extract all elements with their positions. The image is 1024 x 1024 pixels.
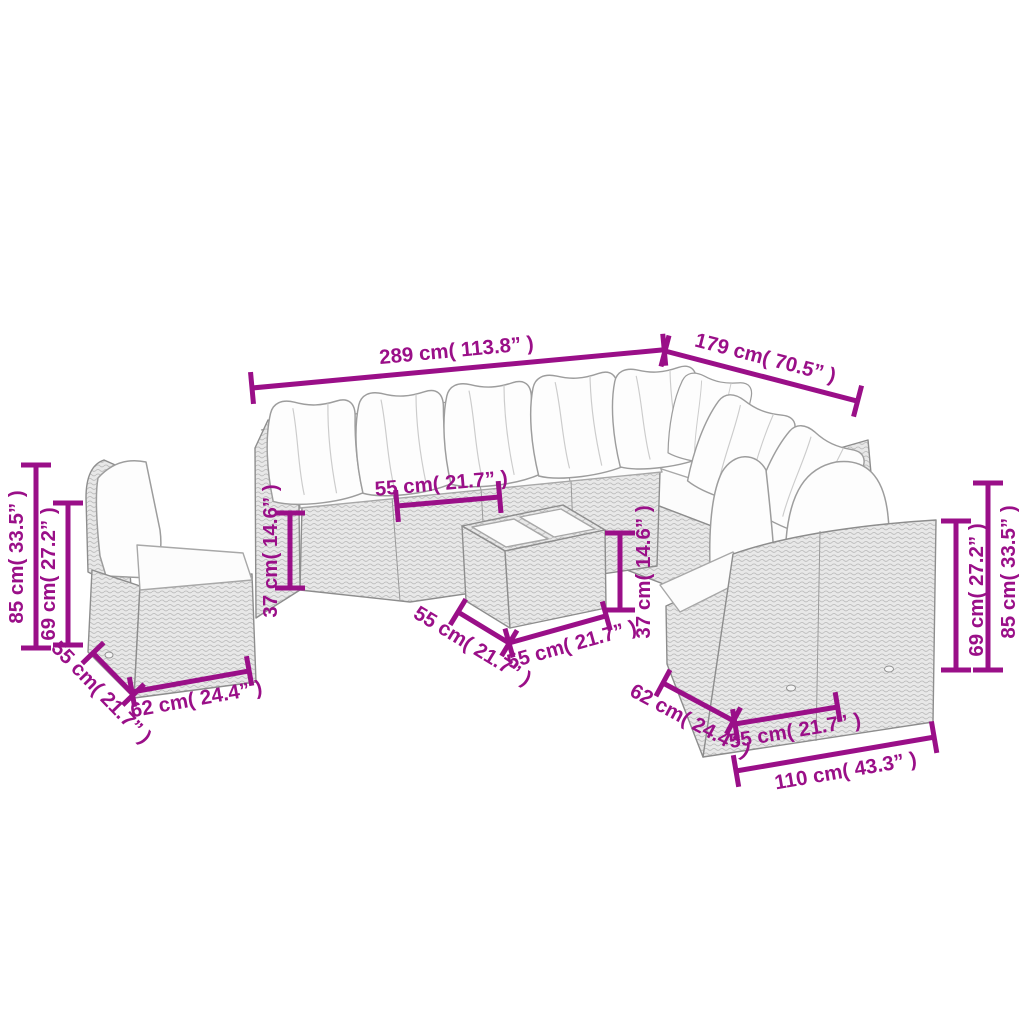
dimension-label: 85 cm( 33.5” ) (5, 490, 28, 623)
dimension-label: 37 cm( 14.6” ) (632, 505, 655, 638)
dimension-diagram-canvas: 289 cm( 113.8” ) 179 cm( 70.5” ) 85 cm( … (0, 0, 1024, 1024)
dimension-chair-back-height: 69 cm( 27.2” ) (37, 503, 83, 645)
coffee-table (462, 505, 606, 628)
dimension-bench-back-height: 69 cm( 27.2” ) (941, 521, 988, 670)
dimension-label: 69 cm( 27.2” ) (37, 507, 60, 640)
dimension-label: 69 cm( 27.2” ) (965, 523, 988, 656)
dimension-label: 85 cm( 33.5” ) (997, 505, 1020, 638)
dimension-label: 37 cm( 14.6” ) (259, 484, 282, 617)
diagram-svg: 289 cm( 113.8” ) 179 cm( 70.5” ) 85 cm( … (0, 0, 1024, 1024)
armless-chair (86, 460, 256, 698)
